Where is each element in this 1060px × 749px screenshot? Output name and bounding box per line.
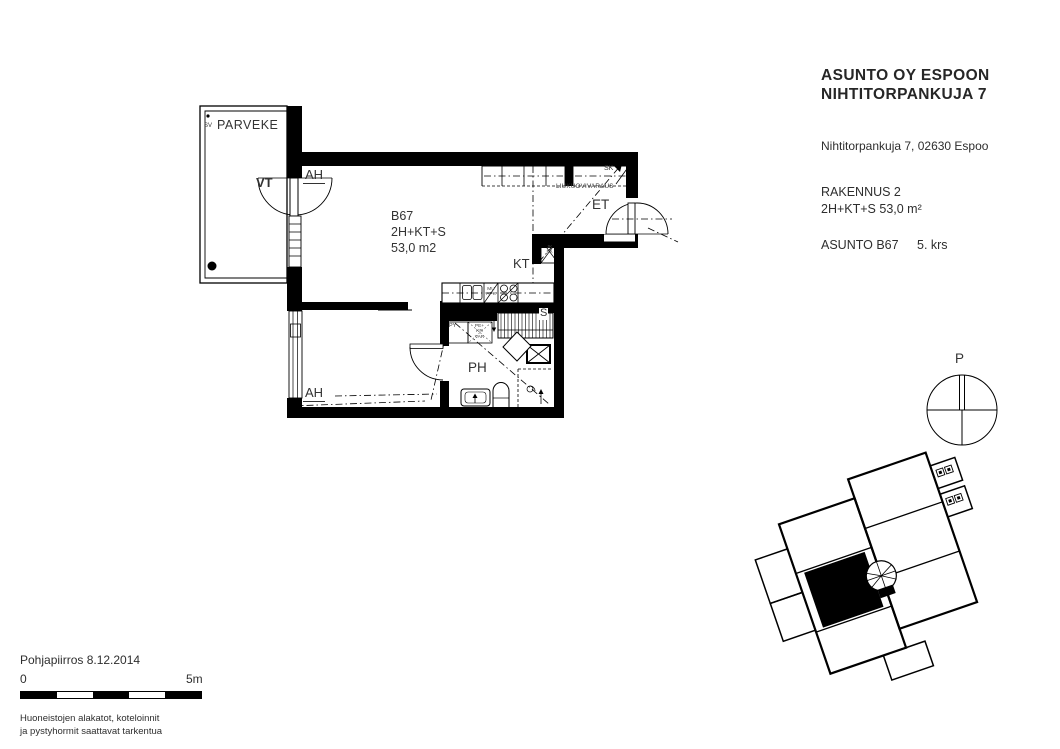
shower-icon	[518, 369, 553, 407]
kitchen-label: KT	[513, 257, 530, 271]
floor-drain-icon	[208, 262, 217, 271]
scale-start-label: 0	[20, 672, 27, 686]
company-name-line2: NIHTITORPANKUJA 7	[821, 85, 1001, 104]
apartment-type: 2H+KT+S 53,0 m²	[821, 202, 1001, 216]
closet-label: SK	[604, 165, 613, 172]
apartment-id: ASUNTO B67	[821, 238, 899, 252]
floor-number: 5. krs	[917, 238, 948, 252]
balcony-door-label: VT	[256, 176, 273, 190]
entry-door	[604, 203, 678, 242]
kitchen-fixtures	[442, 240, 558, 303]
scale-end-label: 5m	[186, 672, 203, 686]
scale-bar	[20, 691, 202, 699]
washbasin-icon	[461, 389, 490, 406]
disclaimer-note: Huoneistojen alakatot, koteloinnit ja py…	[20, 712, 162, 738]
laundry-cabinet-label: PY	[449, 324, 456, 330]
room-lower-label: AH	[303, 385, 325, 402]
toilet-icon	[493, 383, 509, 408]
room-upper-label: AH	[303, 167, 325, 184]
balcony-door	[258, 178, 332, 267]
appliance-note: MUAPK	[484, 287, 498, 298]
compass-icon	[927, 375, 997, 445]
washer-note: PE+KRVAR	[469, 324, 490, 340]
document-title: Pohjapiirros 8.12.2014	[20, 653, 140, 667]
unit-id: B67	[391, 208, 446, 224]
highlighted-apartment	[804, 552, 883, 628]
sauna-label: S	[539, 308, 548, 320]
note-line2: ja pystyhormit saattavat tarkentua	[20, 725, 162, 738]
apartment-row: ASUNTO B67 5. krs	[821, 238, 1001, 252]
sliding-door-note: LIUKUOVIVARAUS	[556, 184, 614, 191]
note-line1: Huoneistojen alakatot, koteloinnit	[20, 712, 162, 725]
bathroom-label: PH	[468, 361, 487, 375]
unit-info: B67 2H+KT+S 53,0 m2	[391, 208, 446, 256]
title-block: ASUNTO OY ESPOON NIHTITORPANKUJA 7 Nihti…	[821, 66, 1001, 252]
entry-label: ET	[592, 198, 609, 212]
floor-plan-page: { "title_block": { "company_line1": "ASU…	[0, 0, 1060, 749]
balcony-code-label: SV	[204, 123, 212, 129]
sauna-heater-icon	[527, 345, 550, 363]
building-name: RAKENNUS 2	[821, 185, 1001, 199]
window	[289, 311, 302, 398]
site-plan	[740, 444, 1016, 709]
balcony-label: PARVEKE	[217, 119, 278, 132]
address: Nihtitorpankuja 7, 02630 Espoo	[821, 139, 1001, 153]
fridge-note: JKPA	[542, 245, 557, 256]
compass-north-label: P	[955, 352, 964, 366]
bath-door-leaf	[410, 344, 443, 349]
company-name-line1: ASUNTO OY ESPOON	[821, 66, 1001, 85]
walls	[287, 106, 638, 418]
sauna-fixtures	[498, 313, 553, 363]
unit-area: 53,0 m2	[391, 240, 446, 256]
unit-type: 2H+KT+S	[391, 224, 446, 240]
balcony-outline	[200, 106, 287, 283]
